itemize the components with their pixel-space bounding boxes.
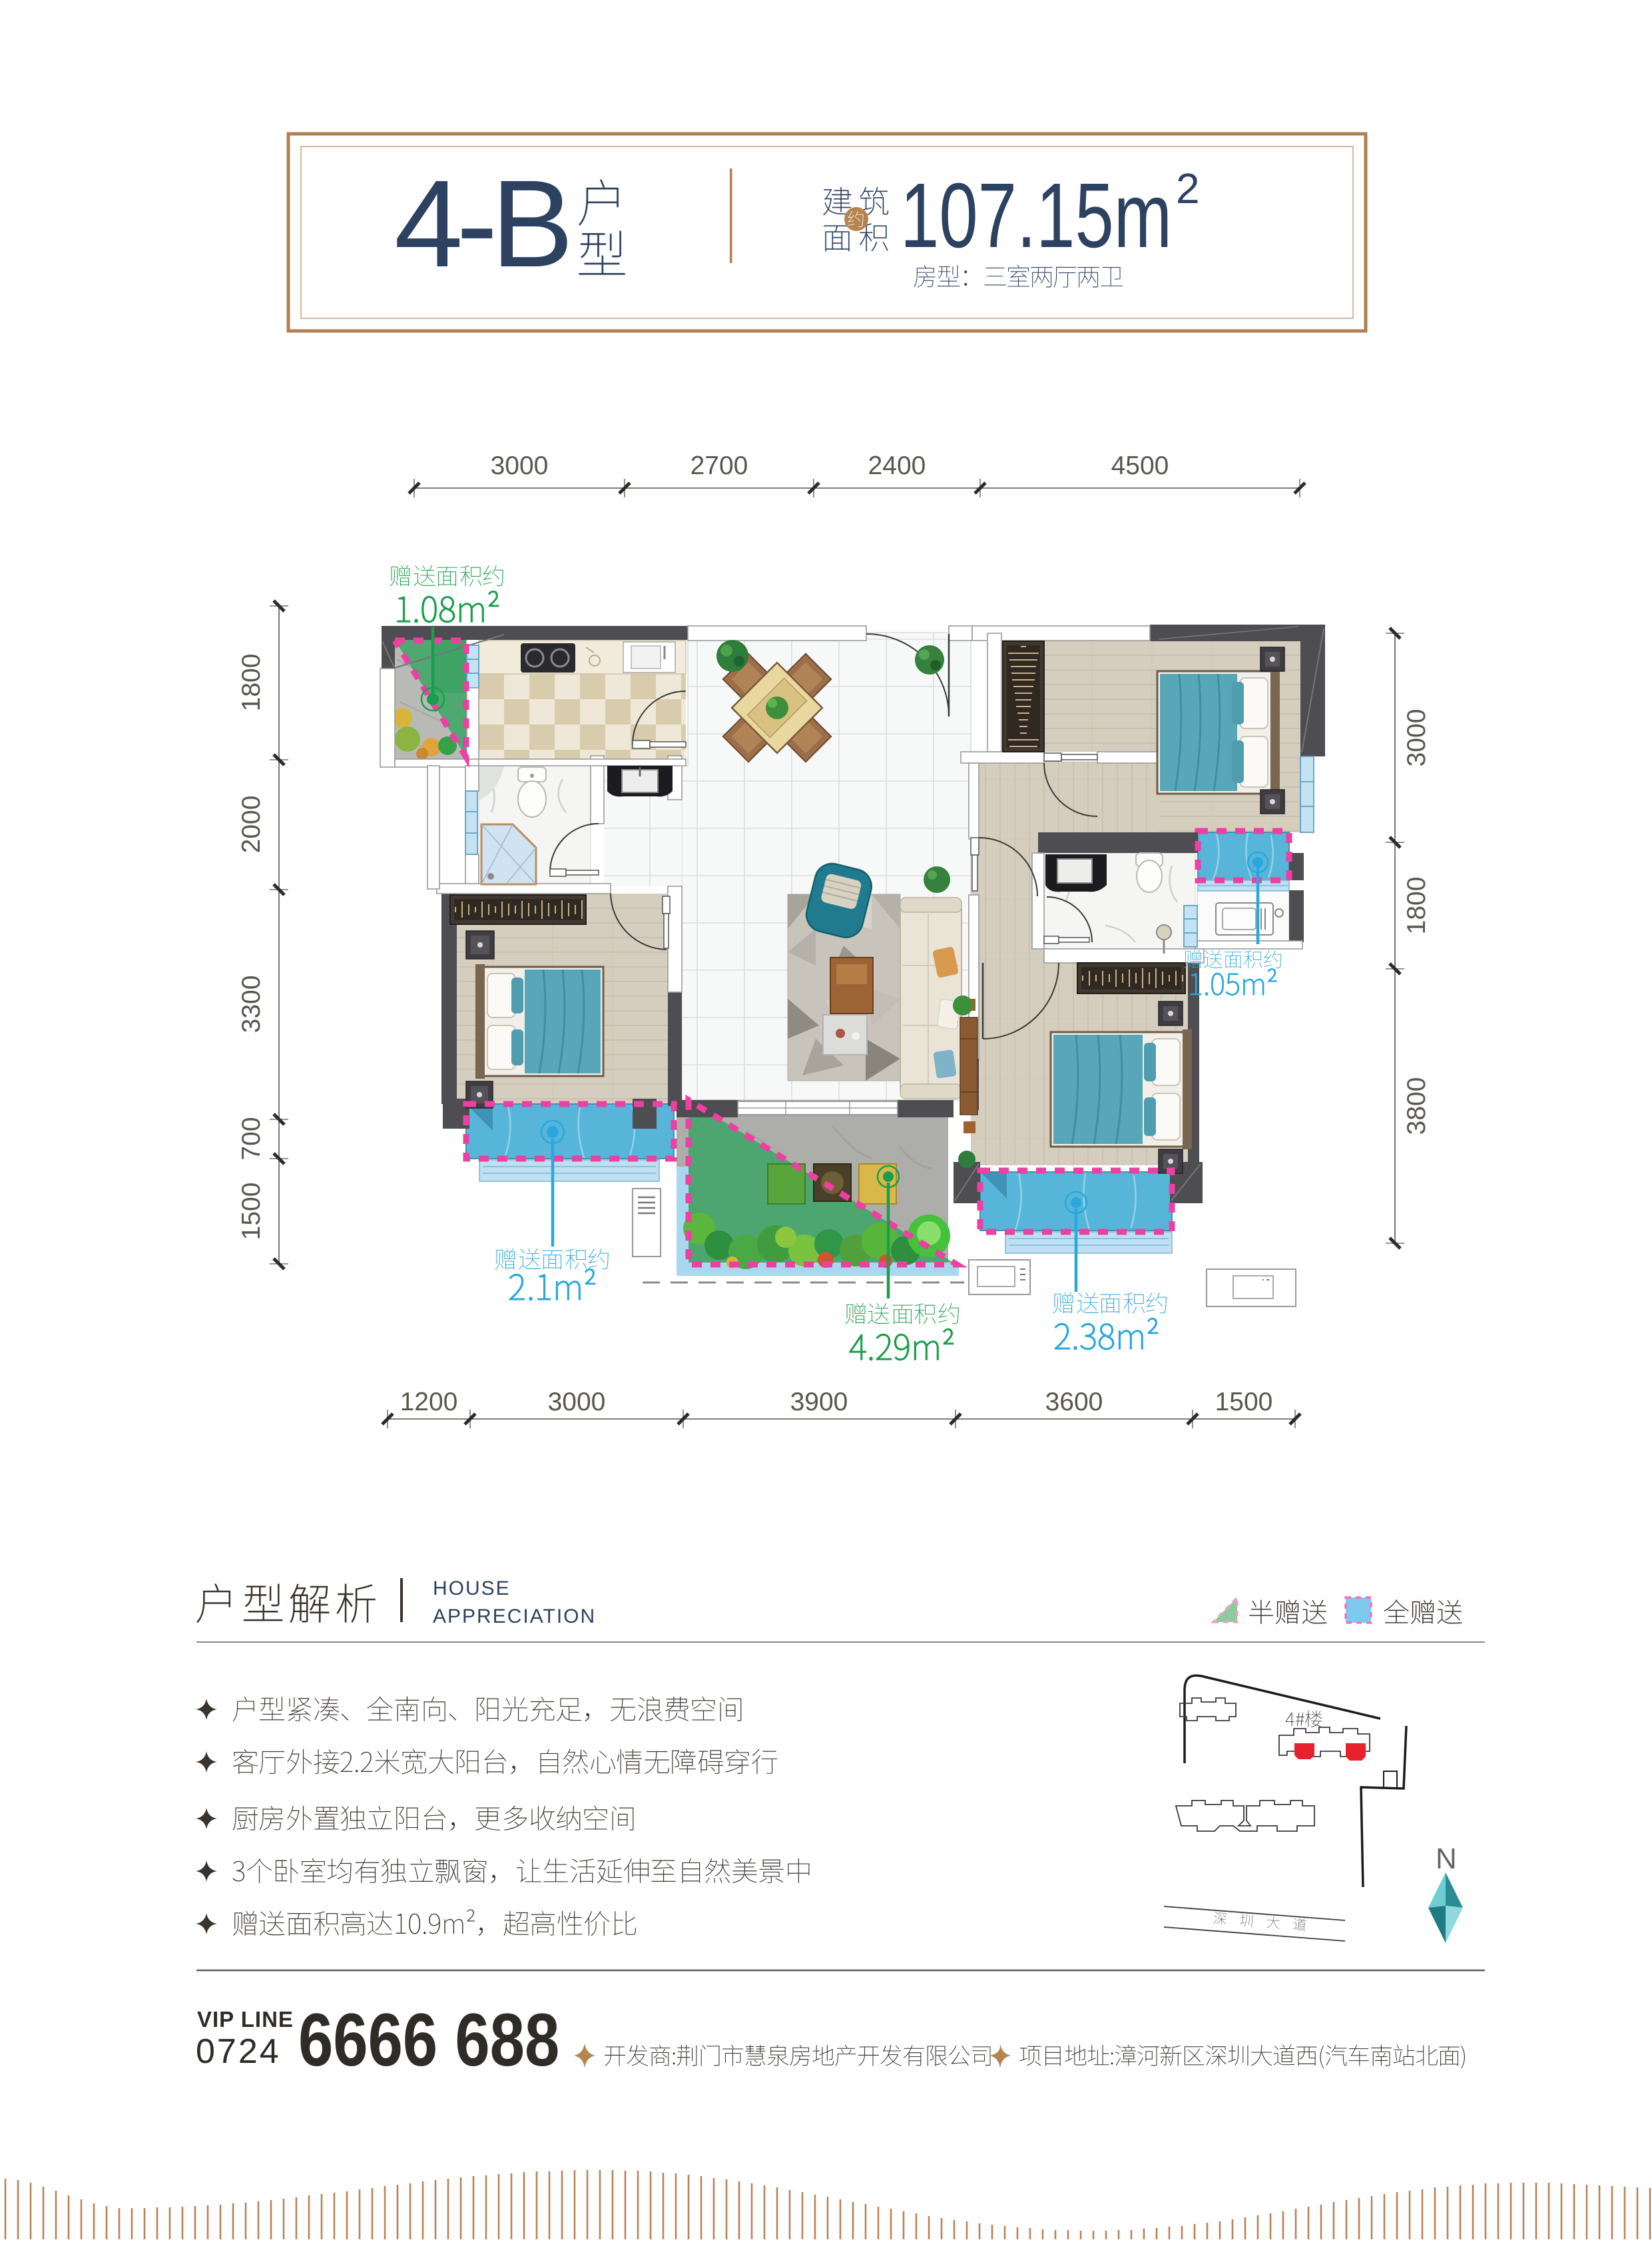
svg-text:0724: 0724 <box>196 2032 281 2071</box>
svg-text:3800: 3800 <box>1402 1077 1431 1135</box>
svg-text:3600: 3600 <box>1045 1388 1103 1416</box>
svg-text:3000: 3000 <box>491 451 549 480</box>
svg-text:3000: 3000 <box>548 1388 606 1416</box>
svg-text:2700: 2700 <box>690 451 748 480</box>
svg-text:107.15m: 107.15m <box>900 164 1172 266</box>
svg-text:2: 2 <box>1176 164 1200 212</box>
svg-text:3300: 3300 <box>237 976 266 1033</box>
svg-text:6666 688: 6666 688 <box>298 1998 559 2082</box>
svg-text:N: N <box>1436 1842 1457 1875</box>
svg-text:1800: 1800 <box>237 654 266 712</box>
svg-text:4-B: 4-B <box>394 155 567 293</box>
svg-text:3000: 3000 <box>1402 709 1431 767</box>
svg-text:1200: 1200 <box>400 1388 458 1416</box>
svg-text:HOUSE: HOUSE <box>433 1577 511 1599</box>
svg-text:1800: 1800 <box>1402 877 1431 935</box>
svg-text:3900: 3900 <box>790 1388 848 1416</box>
svg-text:1500: 1500 <box>237 1183 266 1241</box>
svg-text:4500: 4500 <box>1111 451 1169 480</box>
svg-text:2400: 2400 <box>868 451 926 480</box>
svg-text:1500: 1500 <box>1215 1388 1273 1416</box>
svg-text:VIP LINE: VIP LINE <box>197 2007 294 2032</box>
svg-text:2000: 2000 <box>237 796 266 854</box>
svg-text:700: 700 <box>237 1117 266 1160</box>
svg-text:APPRECIATION: APPRECIATION <box>433 1605 596 1627</box>
